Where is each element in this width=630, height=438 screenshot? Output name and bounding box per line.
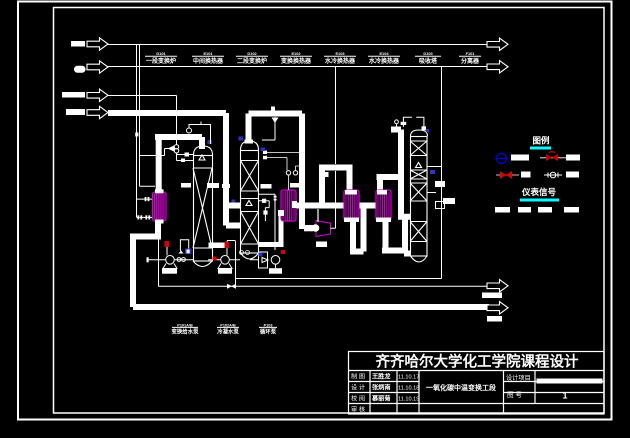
svg-text:图例: 图例 — [532, 136, 550, 146]
svg-text:D103: D103 — [423, 51, 433, 56]
svg-text:D101: D101 — [156, 51, 166, 56]
svg-text:一氧化碳中温变换工段: 一氧化碳中温变换工段 — [426, 383, 496, 392]
svg-text:冷凝水泵: 冷凝水泵 — [217, 328, 239, 336]
svg-text:1: 1 — [562, 391, 567, 401]
svg-text:分离器: 分离器 — [461, 57, 480, 65]
svg-text:水冷换热器: 水冷换热器 — [369, 57, 400, 65]
svg-text:E101: E101 — [203, 51, 213, 56]
svg-text:图 号: 图 号 — [507, 391, 522, 399]
svg-text:审 核: 审 核 — [351, 406, 365, 414]
svg-text:仪表信号: 仪表信号 — [521, 187, 557, 197]
svg-text:中间换热器: 中间换热器 — [193, 57, 224, 65]
svg-text:E102: E102 — [291, 51, 301, 56]
svg-text:11.10.18: 11.10.18 — [398, 386, 419, 392]
svg-text:校 阅: 校 阅 — [351, 395, 365, 403]
svg-text:设 计: 设 计 — [351, 384, 365, 392]
svg-text:二段变换炉: 二段变换炉 — [237, 57, 267, 65]
svg-text:变换给水泵: 变换给水泵 — [172, 328, 200, 336]
svg-text:E103: E103 — [335, 51, 345, 56]
svg-text:张炳南: 张炳南 — [372, 384, 391, 392]
svg-text:齐齐哈尔大学化工学院课程设计: 齐齐哈尔大学化工学院课程设计 — [376, 353, 579, 371]
svg-text:循环泵: 循环泵 — [260, 328, 277, 336]
svg-text:11.10.17: 11.10.17 — [398, 375, 419, 381]
svg-text:王胜龙: 王胜龙 — [372, 373, 391, 381]
svg-text:吸收塔: 吸收塔 — [419, 57, 438, 65]
svg-text:慕丽菊: 慕丽菊 — [371, 395, 391, 403]
svg-text:制 图: 制 图 — [351, 373, 365, 381]
svg-text:设计项目: 设计项目 — [506, 374, 531, 382]
svg-text:水冷换热器: 水冷换热器 — [325, 57, 356, 65]
svg-text:一段变换炉: 一段变换炉 — [146, 57, 176, 65]
svg-text:F101: F101 — [466, 51, 476, 56]
svg-text:11.10.19: 11.10.19 — [398, 397, 419, 403]
svg-text:变换换热器: 变换换热器 — [281, 57, 312, 65]
svg-text:D102: D102 — [247, 51, 257, 56]
svg-text:E104: E104 — [379, 51, 389, 56]
